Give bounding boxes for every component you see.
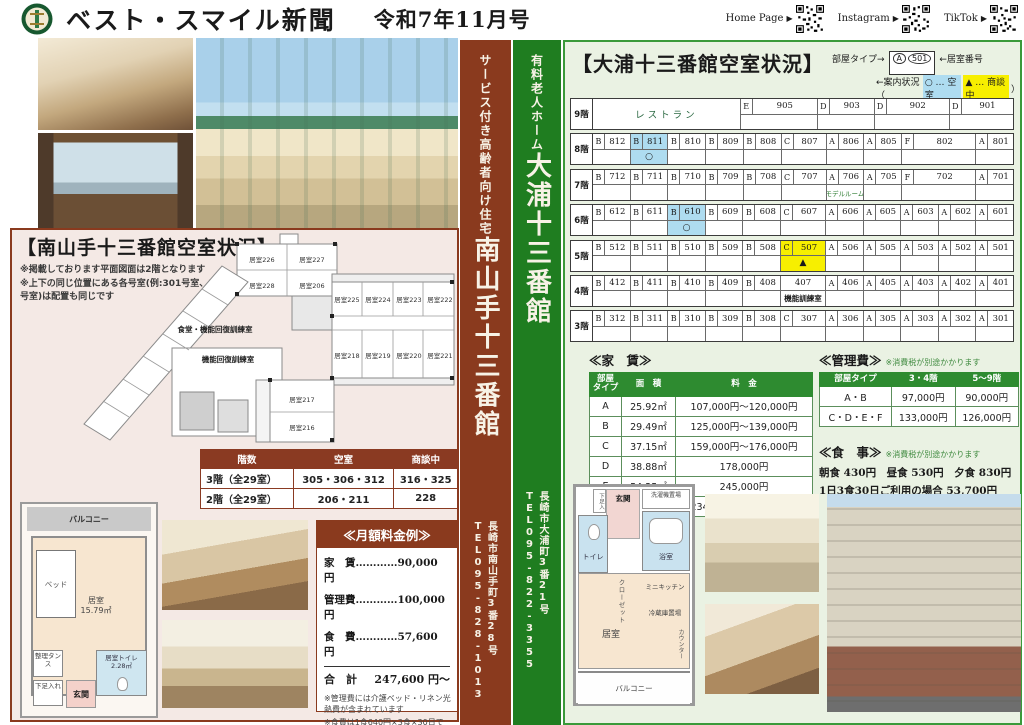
room-type: B (668, 276, 680, 291)
room-cell-408: B408 (742, 276, 780, 306)
room-cell-411: B411 (630, 276, 668, 306)
room-type: B (631, 311, 643, 326)
tiktok-link-label: TikTok (944, 13, 978, 24)
room-number: 905 (753, 99, 817, 114)
room-status (743, 256, 780, 271)
newsletter-title: ベスト・スマイル新聞 (66, 1, 336, 37)
room-status (706, 327, 743, 342)
room-cell-301: A301 (975, 311, 1013, 341)
room-type: C (782, 134, 794, 149)
floor-row: 7階B712B711B710B709B708C707A706モデルルームA705… (570, 169, 1014, 201)
room-cell-509: B509 (705, 241, 743, 271)
room-cell-612: B612 (593, 205, 630, 235)
table-row: C37.15㎡159,000円～176,000円 (590, 436, 813, 456)
room-status (593, 221, 630, 236)
room-cell-510: B510 (667, 241, 705, 271)
room-number: 802 (914, 134, 975, 149)
facility-type-label: 有料老人ホーム (530, 54, 544, 152)
room-type: B (744, 170, 756, 185)
room-cell-405: A405 (863, 276, 901, 306)
room-type: B (668, 134, 680, 149)
room-type: A (826, 241, 838, 256)
room-cell-905: E905 (740, 99, 817, 129)
room-number: 605 (876, 205, 901, 220)
room-cell-603: A603 (900, 205, 938, 235)
floor-label: 9階 (571, 99, 593, 129)
room-number: 602 (951, 205, 976, 220)
room-cell-807: C807 (781, 134, 826, 164)
table-row: B29.49㎡125,000円～139,000円 (590, 416, 813, 436)
training-room-label: 機能回復訓練室 (202, 354, 255, 364)
room-cell-512: B512 (593, 241, 630, 271)
room-number: 502 (951, 241, 976, 256)
banner-title-block: 有料老人ホーム大浦十三番館 (519, 54, 556, 326)
room-cell-503: A503 (900, 241, 938, 271)
meals-title: ≪食 事≫ (819, 445, 882, 460)
room-status (864, 185, 901, 200)
photo-oura-building (827, 494, 1021, 712)
room-cell-701: A701 (975, 170, 1013, 200)
newsletter-page: ベスト・スマイル新聞 令和7年11月号 Home Page▶ Instagram… (0, 0, 1024, 725)
room-status (631, 185, 668, 200)
unit-toilet: トイレ (578, 515, 608, 573)
room-cell-409: B409 (705, 276, 743, 306)
room-type: A (826, 205, 838, 220)
room-number: 312 (605, 311, 630, 326)
room-number: 711 (643, 170, 668, 185)
minamiyamate-section: 【南山手十三番館空室状況】 ※掲載しております平面図面は2階となります※上下の同… (0, 37, 459, 725)
room-type: A (826, 276, 838, 291)
table-row: A25.92㎡107,000円～120,000円 (590, 396, 813, 416)
room-number: 607 (793, 205, 825, 220)
arrow-icon: ▶ (786, 14, 792, 23)
room-status (668, 291, 705, 306)
room-status (818, 115, 874, 130)
room-cell-502: A502 (938, 241, 976, 271)
price-line: 家 賃…………90,000 円 (324, 555, 450, 585)
room-cell-712: B712 (593, 170, 630, 200)
room-cell-407: 407機能訓練室 (780, 276, 825, 306)
room-type: B (631, 241, 643, 256)
room-number: 410 (680, 276, 705, 291)
room-status (901, 221, 938, 236)
room-type: B (668, 311, 680, 326)
room-type: D (875, 99, 887, 114)
room-status (744, 185, 781, 200)
room-number: 507 (793, 241, 825, 256)
room-number: 901 (962, 99, 1013, 114)
room-cell-606: A606 (825, 205, 863, 235)
room-number: 609 (718, 205, 743, 220)
facility-type-label: サービス付き高齢者向け住宅 (478, 54, 492, 236)
room-type: A (826, 311, 838, 326)
room-type: A (864, 311, 876, 326)
price-line: 管理費…………100,000 円 (324, 592, 450, 622)
room-status (875, 115, 949, 130)
room-number: 712 (605, 170, 630, 185)
room-status (901, 256, 938, 271)
legend-sample-cell: A 501 (889, 51, 936, 66)
room-number: 806 (839, 134, 864, 149)
room-label: 居室221 (427, 351, 452, 360)
room-status (976, 185, 1013, 200)
table-row: A・B97,000円90,000円 (820, 387, 1019, 407)
room-status: ○ (631, 150, 668, 165)
room-number: 501 (988, 241, 1013, 256)
room-type: B (668, 241, 680, 256)
room-number: 811 (643, 134, 668, 149)
room-label: 居室220 (396, 351, 421, 360)
instagram-link[interactable]: Instagram▶ (838, 5, 930, 33)
room-cell-709: B709 (705, 170, 743, 200)
room-status (741, 115, 817, 130)
room-cell-802: F802 (901, 134, 975, 164)
room-type: A (864, 205, 876, 220)
column-header: 階数 (201, 450, 294, 469)
room-status (950, 115, 1013, 130)
room-status (631, 291, 668, 306)
room-label: 居室217 (289, 395, 314, 404)
room-cell-410: B410 (667, 276, 705, 306)
room-type: A (864, 170, 876, 185)
room-number: 611 (643, 205, 668, 220)
banner-title-block: サービス付き高齢者向け住宅南山手十三番館 (467, 54, 504, 439)
room-number: 608 (755, 205, 780, 220)
column-header: 商談中 (394, 450, 458, 469)
room-number: 512 (605, 241, 630, 256)
room-type: B (593, 134, 605, 149)
address-label: 長崎市南山手町3番28号 (484, 521, 499, 701)
room-cell-403: A403 (900, 276, 938, 306)
price-box-title: ≪月額料金例≫ (317, 521, 457, 548)
price-notes: ※管理費には介護ベッド・リネン光熱費が含まれています※食費は1食640円×3食×… (317, 687, 457, 725)
room-label: 居室218 (334, 351, 359, 360)
room-number: 412 (605, 276, 630, 291)
floor-row: 3階B312B311B310B309B308C307A306A305A303A3… (570, 310, 1014, 342)
room-type: B (706, 205, 718, 220)
photo-lobby-interior (38, 38, 193, 130)
room-number: 511 (643, 241, 668, 256)
facility-address-block: 長崎市大浦町3番21号 TEL095-822-3355 (524, 491, 550, 671)
room-number: 603 (913, 205, 938, 220)
photo-oura-room (705, 604, 819, 694)
bed-label: ベッド (36, 550, 76, 618)
management-fee-title: ≪管理費≫ (819, 353, 882, 368)
room-cell-708: B708 (743, 170, 781, 200)
room-type: A (864, 241, 876, 256)
room-type: B (706, 311, 718, 326)
homepage-qr-code (796, 5, 824, 33)
masthead: ベスト・スマイル新聞 令和7年11月号 Home Page▶ Instagram… (0, 0, 1024, 37)
legend-room-type: 部屋タイプ→ (832, 52, 885, 65)
room-type: A (976, 170, 988, 185)
photo-window-view (38, 133, 193, 228)
room-status (826, 256, 863, 271)
facility-name-label: 大浦十三番館 (522, 152, 552, 326)
room-number: 311 (643, 311, 668, 326)
room-cell-507: C507▲ (780, 241, 825, 271)
minamiyamate-panel: 【南山手十三番館空室状況】 ※掲載しております平面図面は2階となります※上下の同… (10, 228, 459, 722)
room-label: 居室226 (249, 255, 274, 264)
content-area: 【南山手十三番館空室状況】 ※掲載しております平面図面は2階となります※上下の同… (0, 37, 1024, 725)
room-status (706, 221, 743, 236)
room-cell-401: A401 (975, 276, 1013, 306)
room-cell-610: B610○ (667, 205, 705, 235)
management-fee-table: 部屋タイプ3・4階5～9階A・B97,000円90,000円C・D・E・F133… (819, 372, 1019, 427)
room-status (902, 185, 975, 200)
room-number: 902 (887, 99, 949, 114)
room-cell-811: B811○ (630, 134, 668, 164)
room-status (939, 291, 976, 306)
room-cell-707: C707 (781, 170, 826, 200)
social-links: Home Page▶ Instagram▶ TikTok▶ (726, 5, 1018, 33)
room-number: 807 (794, 134, 826, 149)
room-cell-511: B511 (630, 241, 668, 271)
room-type: C (782, 170, 794, 185)
room-number: 706 (839, 170, 864, 185)
room-cell-608: B608 (742, 205, 780, 235)
room-type: B (743, 205, 755, 220)
room-status (864, 256, 901, 271)
minamiyamate-unit-plan: バルコニー ベッド 居室15.79㎡ 居室トイレ2.28㎡ 整理タンス 下足入れ… (20, 502, 158, 718)
room-type: B (743, 276, 755, 291)
room-label: 居室219 (365, 351, 390, 360)
homepage-link[interactable]: Home Page▶ (726, 5, 824, 33)
room-type: A (976, 134, 988, 149)
kitchen-label: ミニキッチン (642, 583, 688, 591)
room-number: 505 (876, 241, 901, 256)
room-cell-308: B308 (742, 311, 780, 341)
room-status (939, 327, 976, 342)
room-status: モデルルーム (827, 185, 864, 200)
room-status (976, 150, 1013, 165)
unit-bath: 浴室 (642, 511, 690, 571)
room-number: 606 (838, 205, 863, 220)
column-header: 部屋 タイプ (590, 373, 622, 397)
room-cell-312: B312 (593, 311, 630, 341)
room-type: B (706, 170, 718, 185)
room-status (864, 221, 901, 236)
price-note: ※管理費には介護ベッド・リネン光熱費が含まれています (324, 694, 451, 716)
room-status (593, 291, 630, 306)
room-status: ○ (668, 221, 705, 236)
room-cell-307: C307 (780, 311, 825, 341)
room-cell-706: A706モデルルーム (826, 170, 864, 200)
room-type: A (976, 241, 988, 256)
table-row: 2階（全29室）206・211228 (201, 489, 458, 509)
room-number: 809 (718, 134, 743, 149)
phone-label: TEL095-822-3355 (524, 491, 535, 671)
room-cell-402: A402 (938, 276, 976, 306)
room-type: A (939, 205, 951, 220)
room-type: A (901, 276, 913, 291)
room-number: 808 (756, 134, 781, 149)
room-number: 810 (680, 134, 705, 149)
homepage-link-label: Home Page (726, 13, 784, 24)
room-status (976, 221, 1013, 236)
arrow-icon: ▶ (893, 14, 899, 23)
room-cell-505: A505 (863, 241, 901, 271)
room-type: B (631, 134, 643, 149)
legend-room-number: ←居室番号 (939, 52, 983, 65)
dresser-label: 整理タンス (33, 650, 63, 677)
room-type: C (781, 311, 793, 326)
facility-cell: レストラン (593, 99, 740, 129)
room-number: 306 (838, 311, 863, 326)
oura-unit-plan: 玄関 下足入 洗濯機置場 トイレ 浴室 クローゼット ミニキッチン 冷蔵庫置場 … (573, 484, 695, 706)
room-type: B (593, 205, 605, 220)
floor-row: 9階レストランE905D903D902D901 (570, 98, 1014, 130)
room-cell-801: A801 (975, 134, 1013, 164)
toilet-icon (117, 677, 128, 691)
price-lines: 家 賃…………90,000 円管理費…………100,000 円食 費…………57… (317, 548, 457, 659)
room-type: B (668, 170, 680, 185)
total-value: 247,600 円～ (374, 671, 450, 687)
room-type: A (901, 205, 913, 220)
room-status (864, 291, 901, 306)
price-total-row: 合 計 247,600 円～ (324, 666, 450, 687)
minamiyamate-banner: サービス付き高齢者向け住宅南山手十三番館 長崎市南山手町3番28号 TEL095… (460, 40, 511, 725)
room-cell-310: B310 (667, 311, 705, 341)
room-cell-810: B810 (667, 134, 705, 164)
minamiyamate-vacancy-table: 階数空室商談中3階（全29室）305・306・312316・3252階（全29室… (200, 449, 458, 509)
room-type: B (631, 276, 643, 291)
room-number: 601 (988, 205, 1013, 220)
room-number: 309 (718, 311, 743, 326)
room-cell-305: A305 (863, 311, 901, 341)
room-label: 居室224 (365, 295, 390, 304)
legend-sample-type: A (893, 53, 906, 64)
room-number: 307 (793, 311, 825, 326)
balcony-label: バルコニー (578, 671, 690, 704)
room-cell-602: A602 (938, 205, 976, 235)
tax-note: ※消費税が別途かかります (886, 450, 981, 459)
room-type: B (593, 241, 605, 256)
room-label: 居室227 (299, 255, 324, 264)
floor-row: 8階B812B811○B810B809B808C807A806A805F802A… (570, 133, 1014, 165)
floor-label: 4階 (571, 276, 593, 306)
monthly-price-box: ≪月額料金例≫ 家 賃…………90,000 円管理費…………100,000 円食… (316, 520, 458, 712)
room-type: A (976, 311, 988, 326)
room-status (864, 150, 901, 165)
room-status (668, 185, 705, 200)
room-label: 居室216 (289, 423, 314, 432)
column-header: 料 金 (676, 373, 813, 397)
total-label: 合 計 (324, 671, 357, 687)
room-number: 801 (988, 134, 1013, 149)
newsletter-logo-icon (20, 2, 54, 36)
legend-close: ） (1011, 82, 1020, 95)
room-status (593, 185, 630, 200)
room-cell-609: B609 (705, 205, 743, 235)
floor-row: 5階B512B511B510B509B508C507▲A506A505A503A… (570, 240, 1014, 272)
price-note: ※食費は1食640円×3食×30日で計算しています (324, 718, 451, 725)
photo-minamiyamate-building (196, 38, 458, 228)
room-type: B (744, 134, 756, 149)
facility-name-label: 南山手十三番館 (470, 236, 500, 439)
room-cell-901: D901 (949, 99, 1013, 129)
room-number: 710 (680, 170, 705, 185)
room-cell-805: A805 (863, 134, 901, 164)
room-cell-705: A705 (863, 170, 901, 200)
room-type: A (976, 205, 988, 220)
room-type: B (743, 311, 755, 326)
room-number: 408 (755, 276, 780, 291)
floor-label: 6階 (571, 205, 593, 235)
room-number: 310 (680, 311, 705, 326)
fridge-label: 冷蔵庫置場 (642, 609, 688, 617)
room-number: 305 (876, 311, 901, 326)
room-status (901, 291, 938, 306)
table-row: D38.88㎡178,000円 (590, 456, 813, 476)
rent-title: ≪家 賃≫ (589, 350, 813, 369)
room-type: B (743, 241, 755, 256)
room-number: 402 (951, 276, 976, 291)
room-type: B (593, 311, 605, 326)
shoe-box-label: 下足入れ (33, 680, 63, 706)
room-type: B (631, 205, 643, 220)
instagram-link-label: Instagram (838, 13, 890, 24)
management-fee-section: ≪管理費≫※消費税が別途かかります 部屋タイプ3・4階5～9階A・B97,000… (819, 350, 1019, 427)
room-number: 301 (988, 311, 1013, 326)
room-number: 503 (913, 241, 938, 256)
room-type: A (827, 170, 839, 185)
room-status (593, 150, 630, 165)
toilet-icon (588, 524, 600, 540)
room-cell-702: F702 (901, 170, 975, 200)
room-type: A (939, 276, 951, 291)
room-status (976, 291, 1013, 306)
table-row: C・D・E・F133,000円126,000円 (820, 407, 1019, 427)
room-number: 510 (680, 241, 705, 256)
tiktok-link[interactable]: TikTok▶ (944, 5, 1018, 33)
room-cell-902: D902 (874, 99, 949, 129)
room-cell-406: A406 (825, 276, 863, 306)
floor-row: 6階B612B611B610○B609B608C607A606A605A603A… (570, 204, 1014, 236)
room-number: 709 (718, 170, 743, 185)
arrow-icon: ▶ (981, 14, 987, 23)
room-type: A (939, 241, 951, 256)
room-label: 居室 (602, 627, 620, 640)
room-cell-412: B412 (593, 276, 630, 306)
room-cell-808: B808 (743, 134, 781, 164)
room-cell-309: B309 (705, 311, 743, 341)
room-status (631, 256, 668, 271)
room-cell-607: C607 (780, 205, 825, 235)
room-status (706, 185, 743, 200)
room-status (593, 327, 630, 342)
floor-label: 3階 (571, 311, 593, 341)
room-number: 705 (876, 170, 901, 185)
room-status: ▲ (781, 256, 825, 271)
price-line: 食 費…………57,600 円 (324, 629, 450, 659)
entrance-label: 玄関 (66, 680, 96, 708)
room-status (901, 327, 938, 342)
laundry-label: 洗濯機置場 (642, 489, 690, 509)
room-number: 403 (913, 276, 938, 291)
room-status (706, 256, 743, 271)
room-label: 居室222 (427, 295, 452, 304)
closet-label: クローゼット (616, 579, 626, 624)
room-cell-311: B311 (630, 311, 668, 341)
room-type: B (706, 134, 718, 149)
room-type: E (741, 99, 753, 114)
room-number: 303 (913, 311, 938, 326)
legend-sample-number: 501 (908, 53, 931, 64)
room-cell-812: B812 (593, 134, 630, 164)
room-cell-303: A303 (900, 311, 938, 341)
room-type: A (901, 311, 913, 326)
